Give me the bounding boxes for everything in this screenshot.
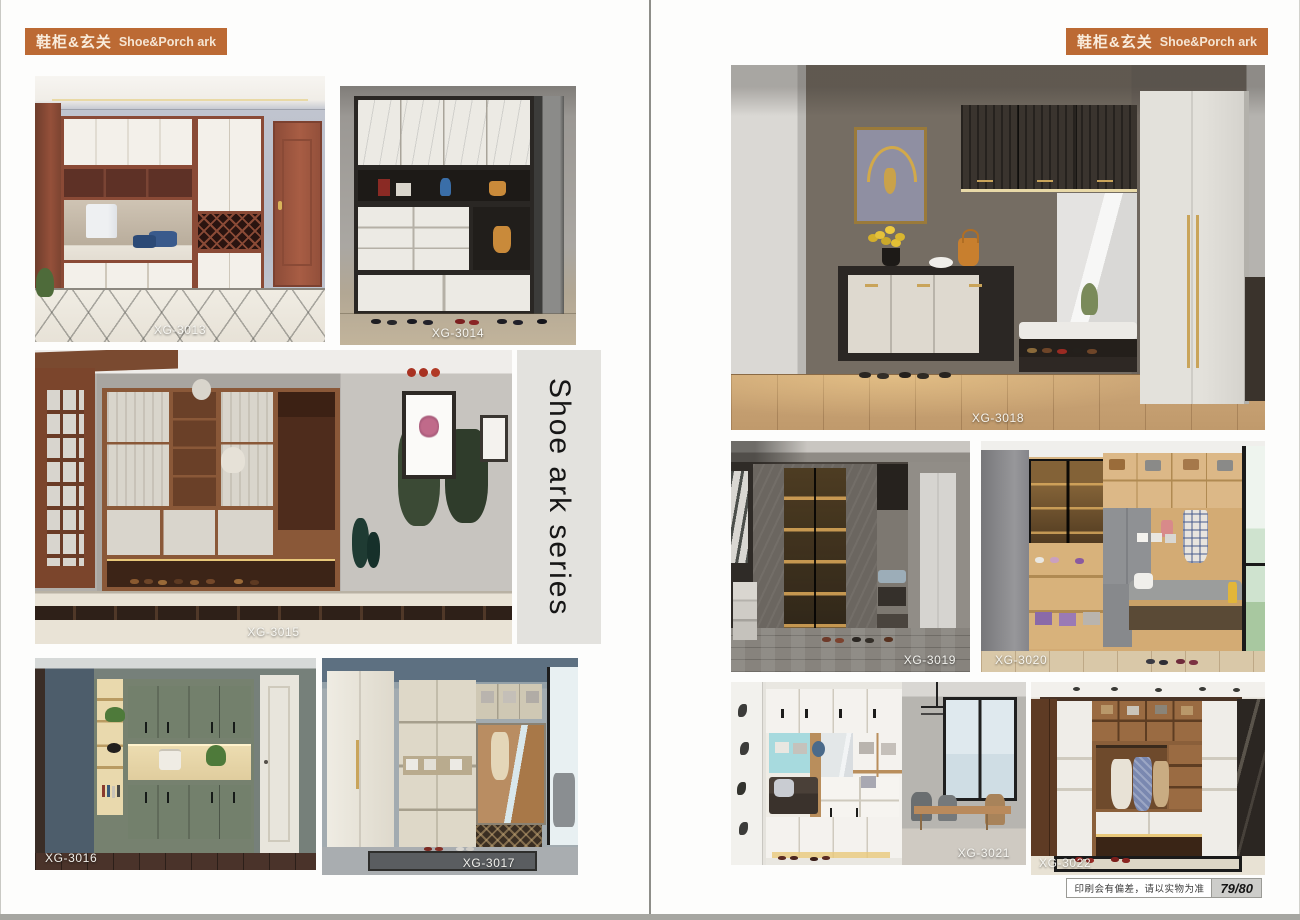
wall-art <box>731 471 748 563</box>
wood-door <box>1031 699 1057 855</box>
handles <box>781 709 784 718</box>
shoe-shelf <box>1019 339 1136 372</box>
plaid-shirt <box>1183 510 1209 563</box>
floor-inlay <box>35 606 512 621</box>
tall-wardrobe <box>1140 91 1249 405</box>
photo-xg3022: XG-3022 <box>1031 682 1265 875</box>
pillow <box>774 779 795 797</box>
photo-xg3014: XG-3014 <box>340 86 576 345</box>
decor-books <box>378 179 390 196</box>
storage-boxes <box>1035 612 1052 625</box>
orange-handbag <box>958 238 979 265</box>
cabinet <box>61 116 264 292</box>
hanging-coat <box>1111 759 1132 809</box>
gold-pulls <box>865 284 878 287</box>
shoes <box>371 319 381 324</box>
catalog-spread: 鞋柜&玄关 Shoe&Porch ark <box>0 0 1300 920</box>
storage-boxes <box>481 691 494 703</box>
shoes <box>130 579 139 584</box>
wood-pillar <box>35 103 61 292</box>
lit-niche <box>128 744 251 781</box>
hanging-coat <box>1133 757 1152 811</box>
footer: 印刷会有偏差，请以实物为准 79/80 <box>1066 878 1262 898</box>
photo-label: XG-3013 <box>35 323 325 337</box>
hanging-shirt <box>86 204 117 239</box>
wood-screen <box>35 368 95 589</box>
cove-light <box>52 99 307 101</box>
window <box>1242 446 1265 663</box>
drawers <box>358 207 469 270</box>
bench-base <box>1129 600 1243 630</box>
under-light <box>772 852 890 857</box>
shoes <box>1035 557 1044 563</box>
photo-xg3016: XG-3016 <box>35 658 316 870</box>
mirror-panel <box>1237 699 1265 861</box>
white-door <box>260 675 299 853</box>
bottom-drawers <box>64 263 192 288</box>
gold-pulls <box>977 180 993 183</box>
flower-pot <box>882 248 900 266</box>
handles <box>145 722 148 733</box>
drawers <box>1096 812 1202 834</box>
decor-vase <box>440 178 450 196</box>
white-hat <box>929 257 953 268</box>
ceiling-spotlights <box>1073 687 1080 691</box>
photo-xg3015: XG-3015 <box>35 350 512 644</box>
books <box>102 785 105 797</box>
cabinet <box>354 96 533 314</box>
bull-art-frame <box>854 127 927 224</box>
tall-doors <box>198 119 261 210</box>
bench-cushion <box>878 570 906 584</box>
bench-niche <box>877 510 908 614</box>
shoes <box>859 372 871 378</box>
photo-label: XG-3014 <box>340 326 576 340</box>
section-badge-left: 鞋柜&玄关 Shoe&Porch ark <box>25 28 227 55</box>
open-shelves <box>64 169 192 197</box>
pink-bag <box>1161 520 1173 537</box>
shoes <box>1146 659 1155 664</box>
shoe-boxes <box>733 582 757 640</box>
photo-label: XG-3018 <box>731 411 1265 425</box>
under-shelf <box>878 587 906 606</box>
series-title: Shoe ark series <box>542 378 576 616</box>
gold-handle <box>1187 215 1190 368</box>
upper-doors <box>358 100 530 165</box>
glass-cabinet <box>1029 459 1107 546</box>
whitewash-doors <box>107 392 169 506</box>
shoe-shelf <box>107 559 336 587</box>
shoes <box>778 856 786 860</box>
decor-bag <box>489 181 506 196</box>
entry-door <box>273 121 322 287</box>
mirror-backsplash <box>1057 193 1137 343</box>
ceiling-line <box>35 109 325 111</box>
photo-xg3018: XG-3018 <box>731 65 1265 430</box>
pillow <box>133 235 156 248</box>
mirror-niche <box>476 723 547 825</box>
section-title-zh: 鞋柜&玄关 <box>36 31 112 52</box>
storage-boxes <box>775 742 789 753</box>
section-badge-right: 鞋柜&玄关 Shoe&Porch ark <box>1066 28 1268 55</box>
upper-doors <box>64 119 192 165</box>
section-title-en: Shoe&Porch ark <box>119 35 216 49</box>
page-divider <box>649 0 651 920</box>
photo-label: XG-3017 <box>463 856 515 870</box>
photo-label: XG-3016 <box>45 851 97 865</box>
yellow-bottle <box>1228 582 1237 603</box>
plant <box>206 745 226 766</box>
storage-boxes <box>406 759 418 770</box>
niche <box>64 200 192 260</box>
hanging-coat <box>491 732 509 780</box>
shoes <box>1027 348 1037 353</box>
wall-art <box>402 391 455 478</box>
red-jars <box>407 368 416 377</box>
photo-label: XG-3015 <box>35 625 512 639</box>
window <box>547 667 578 845</box>
baskets <box>1101 705 1113 714</box>
photo-xg3017: XG-3017 <box>322 658 578 875</box>
side-frame <box>534 96 565 314</box>
lower-doors <box>198 253 261 288</box>
section-title-en: Shoe&Porch ark <box>1160 35 1257 49</box>
wall-art <box>480 415 508 462</box>
open-cubby <box>473 207 530 270</box>
photo-xg3019: XG-3019 <box>731 441 970 672</box>
dining-table <box>914 806 1011 813</box>
white-cabinet-right <box>1202 701 1237 855</box>
top-cabinet <box>877 464 908 510</box>
display-cabinet <box>753 464 877 649</box>
decor-books <box>396 183 411 197</box>
gold-handle <box>1196 215 1199 368</box>
photo-xg3021: XG-3021 <box>731 682 1026 865</box>
open-shelf <box>358 170 530 200</box>
pillow <box>1134 573 1152 589</box>
floor-line <box>340 313 576 314</box>
photo-label: XG-3019 <box>904 653 956 667</box>
wardrobe-door <box>327 671 394 862</box>
photo-xg3013: XG-3013 <box>35 76 325 342</box>
open-wardrobe <box>278 392 335 530</box>
handles <box>145 792 148 803</box>
print-disclaimer: 印刷会有偏差，请以实物为准 <box>1066 878 1212 898</box>
handles <box>830 808 833 817</box>
wine-lattice <box>198 214 261 249</box>
white-door <box>731 682 766 865</box>
plant <box>105 707 125 722</box>
yellow-flowers <box>875 231 885 239</box>
table-legs <box>920 814 922 830</box>
section-title-zh: 鞋柜&玄关 <box>1077 31 1153 52</box>
series-title-panel: Shoe ark series <box>517 350 601 644</box>
plant <box>36 268 53 297</box>
page-edge <box>0 914 1300 920</box>
floor-vase <box>367 532 380 567</box>
window <box>943 697 1017 802</box>
hanging-coat <box>1153 761 1169 807</box>
baskets <box>1109 459 1125 470</box>
cabinet <box>102 388 341 591</box>
open-shelves <box>173 392 216 506</box>
dark-side-panel <box>1245 277 1265 401</box>
bench-cushion <box>1019 322 1136 338</box>
photo-label: XG-3020 <box>995 653 1047 667</box>
sideboard <box>838 266 1014 361</box>
photo-label: XG-3021 <box>958 846 1010 860</box>
cabinet <box>766 689 906 857</box>
side-shelves <box>1169 745 1202 810</box>
gray-door <box>981 450 1029 663</box>
decor-bottles <box>1137 533 1148 542</box>
decor <box>221 447 245 473</box>
clock <box>107 743 121 754</box>
page-number: 79/80 <box>1212 878 1262 898</box>
shoes <box>822 637 831 642</box>
handbag <box>493 226 511 252</box>
glass-doors <box>784 468 846 645</box>
white-door <box>920 473 956 628</box>
upper-doors <box>766 689 902 733</box>
photo-xg3020: XG-3020 <box>981 441 1265 672</box>
photo-label: XG-3022 <box>1039 856 1091 870</box>
shoe-bay <box>1096 834 1202 856</box>
handbag <box>159 749 181 770</box>
bottom-doors <box>358 275 530 311</box>
storage-boxes <box>859 742 874 754</box>
sideboard-doors <box>848 275 978 353</box>
drawers <box>107 510 274 555</box>
page-edge <box>0 0 1 920</box>
pendant-lamp <box>936 682 938 706</box>
white-cabinet-left <box>1057 701 1092 855</box>
